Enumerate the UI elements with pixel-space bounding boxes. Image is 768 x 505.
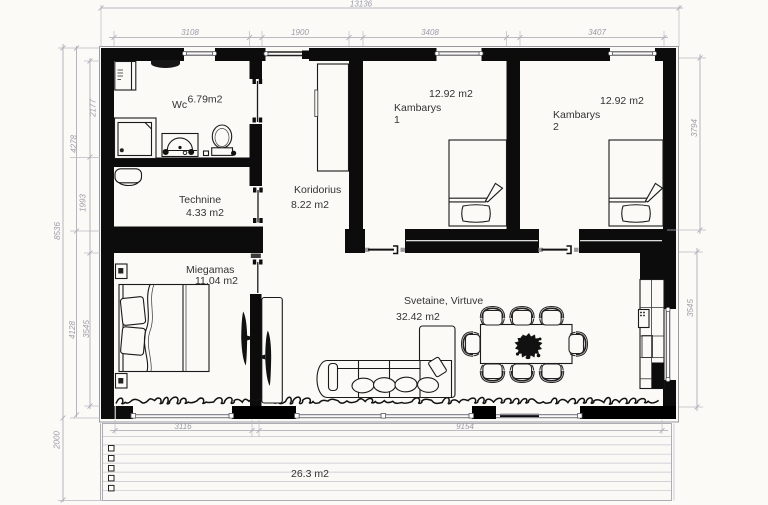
svg-text:3794: 3794 xyxy=(690,119,699,137)
svg-text:6.79m2: 6.79m2 xyxy=(188,94,223,106)
svg-text:12.92 m2: 12.92 m2 xyxy=(600,95,644,107)
svg-text:1900: 1900 xyxy=(291,28,309,37)
svg-text:2177: 2177 xyxy=(89,99,98,118)
svg-text:Technine: Technine xyxy=(179,194,221,206)
svg-text:3108: 3108 xyxy=(181,28,199,37)
svg-text:2000: 2000 xyxy=(53,431,62,450)
svg-text:8.22 m2: 8.22 m2 xyxy=(291,199,329,211)
svg-text:4.33 m2: 4.33 m2 xyxy=(186,207,224,219)
svg-text:1993: 1993 xyxy=(79,194,88,212)
svg-text:32.42 m2: 32.42 m2 xyxy=(396,311,440,323)
svg-text:Kambarys: Kambarys xyxy=(553,109,600,121)
svg-text:9154: 9154 xyxy=(456,422,474,431)
svg-text:26.3 m2: 26.3 m2 xyxy=(291,468,329,480)
svg-text:3407: 3407 xyxy=(588,28,606,37)
svg-text:12.92 m2: 12.92 m2 xyxy=(429,88,473,100)
svg-text:Kambarys: Kambarys xyxy=(394,102,441,114)
svg-text:3408: 3408 xyxy=(421,28,439,37)
svg-text:3116: 3116 xyxy=(174,422,192,431)
svg-text:Wc: Wc xyxy=(172,99,187,111)
svg-text:4278: 4278 xyxy=(70,135,79,153)
svg-text:4128: 4128 xyxy=(68,321,77,339)
svg-text:2: 2 xyxy=(553,121,559,133)
svg-text:1: 1 xyxy=(394,114,400,126)
svg-text:Svetaine, Virtuve: Svetaine, Virtuve xyxy=(404,295,483,307)
svg-text:Koridorius: Koridorius xyxy=(294,184,341,196)
svg-text:8536: 8536 xyxy=(53,222,62,240)
svg-text:3545: 3545 xyxy=(686,299,695,317)
svg-text:13136: 13136 xyxy=(350,0,373,9)
svg-text:3545: 3545 xyxy=(82,320,91,338)
